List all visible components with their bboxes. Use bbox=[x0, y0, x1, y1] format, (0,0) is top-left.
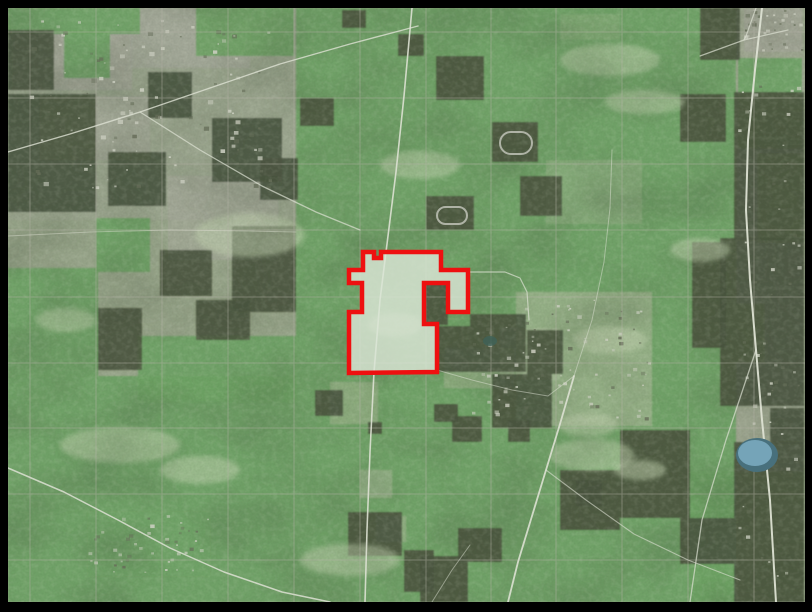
building-speck bbox=[122, 518, 126, 521]
building-speck bbox=[762, 112, 766, 115]
building-speck bbox=[772, 431, 776, 434]
building-speck bbox=[64, 72, 66, 73]
building-speck bbox=[616, 417, 618, 419]
building-speck bbox=[749, 206, 751, 208]
building-speck bbox=[526, 322, 530, 325]
building-speck bbox=[754, 281, 757, 283]
building-speck bbox=[768, 561, 770, 563]
building-speck bbox=[122, 566, 125, 569]
building-speck bbox=[746, 14, 750, 18]
building-speck bbox=[254, 149, 257, 151]
building-speck bbox=[789, 283, 792, 285]
building-speck bbox=[784, 407, 787, 409]
building-speck bbox=[60, 128, 62, 129]
building-speck bbox=[782, 19, 785, 22]
building-speck bbox=[110, 66, 115, 70]
building-speck bbox=[774, 22, 776, 24]
building-speck bbox=[114, 186, 116, 188]
building-speck bbox=[130, 102, 134, 105]
building-speck bbox=[793, 234, 797, 237]
building-speck bbox=[534, 329, 536, 331]
building-speck bbox=[59, 44, 62, 46]
building-speck bbox=[113, 149, 116, 151]
building-speck bbox=[269, 179, 272, 182]
building-speck bbox=[37, 172, 40, 175]
building-speck bbox=[258, 148, 262, 151]
building-speck bbox=[532, 336, 535, 338]
building-speck bbox=[119, 554, 123, 557]
building-speck bbox=[180, 36, 182, 37]
building-speck bbox=[498, 399, 500, 401]
building-speck bbox=[127, 555, 131, 559]
building-speck bbox=[765, 396, 767, 397]
building-speck bbox=[89, 552, 93, 555]
building-speck bbox=[132, 135, 137, 139]
building-speck bbox=[780, 23, 782, 25]
building-speck bbox=[472, 412, 475, 415]
building-speck bbox=[97, 59, 100, 62]
building-speck bbox=[640, 311, 642, 313]
building-speck bbox=[57, 25, 61, 28]
building-speck bbox=[611, 386, 614, 389]
building-speck bbox=[768, 147, 771, 149]
building-speck bbox=[742, 91, 744, 93]
building-speck bbox=[207, 519, 209, 521]
building-speck bbox=[101, 135, 106, 139]
building-speck bbox=[114, 564, 117, 566]
building-speck bbox=[176, 569, 178, 570]
building-speck bbox=[769, 43, 772, 46]
building-speck bbox=[120, 54, 125, 58]
building-speck bbox=[739, 359, 742, 362]
building-speck bbox=[760, 353, 762, 354]
building-speck bbox=[636, 311, 639, 314]
building-speck bbox=[619, 342, 623, 345]
building-speck bbox=[642, 385, 644, 386]
building-speck bbox=[738, 129, 741, 132]
building-speck bbox=[560, 375, 562, 377]
building-speck bbox=[113, 549, 117, 552]
building-speck bbox=[174, 164, 176, 166]
building-speck bbox=[609, 395, 611, 397]
building-speck bbox=[87, 93, 89, 94]
building-speck bbox=[797, 134, 799, 136]
building-speck bbox=[801, 49, 803, 51]
building-speck bbox=[84, 168, 88, 171]
building-speck bbox=[137, 184, 141, 187]
building-speck bbox=[618, 337, 621, 340]
building-speck bbox=[482, 373, 486, 376]
building-speck bbox=[129, 110, 131, 111]
building-speck bbox=[232, 113, 234, 115]
building-speck bbox=[222, 33, 225, 36]
building-speck bbox=[759, 86, 762, 88]
building-speck bbox=[768, 393, 772, 396]
building-speck bbox=[537, 344, 541, 347]
building-speck bbox=[165, 569, 168, 571]
building-speck bbox=[799, 24, 803, 27]
building-speck bbox=[235, 58, 238, 60]
building-speck bbox=[793, 371, 796, 373]
building-speck bbox=[633, 368, 637, 371]
building-speck bbox=[249, 134, 253, 138]
building-speck bbox=[123, 44, 125, 45]
building-speck bbox=[213, 50, 217, 53]
building-speck bbox=[773, 258, 776, 260]
building-speck bbox=[531, 350, 535, 354]
building-speck bbox=[221, 149, 226, 153]
building-speck bbox=[487, 375, 491, 378]
building-speck bbox=[781, 366, 784, 369]
building-speck bbox=[113, 81, 116, 83]
building-speck bbox=[121, 111, 126, 115]
building-speck bbox=[126, 538, 130, 541]
building-speck bbox=[128, 118, 131, 121]
building-speck bbox=[612, 349, 615, 351]
building-speck bbox=[200, 124, 202, 125]
building-speck bbox=[161, 47, 165, 50]
building-speck bbox=[155, 115, 160, 119]
building-speck bbox=[230, 137, 234, 140]
building-speck bbox=[260, 170, 263, 172]
building-speck bbox=[196, 531, 198, 533]
building-speck bbox=[258, 156, 263, 160]
building-speck bbox=[791, 21, 794, 23]
building-speck bbox=[167, 515, 170, 518]
building-speck bbox=[783, 145, 785, 146]
building-speck bbox=[44, 182, 49, 186]
building-speck bbox=[594, 300, 596, 301]
building-speck bbox=[148, 518, 151, 520]
building-speck bbox=[605, 339, 608, 341]
building-speck bbox=[771, 294, 773, 295]
building-speck bbox=[745, 394, 747, 396]
building-speck bbox=[195, 540, 197, 542]
building-speck bbox=[254, 184, 259, 188]
building-speck bbox=[508, 324, 511, 326]
building-speck bbox=[123, 97, 128, 101]
building-speck bbox=[222, 39, 226, 42]
building-speck bbox=[739, 527, 742, 529]
building-speck bbox=[523, 352, 525, 353]
building-speck bbox=[214, 83, 217, 85]
building-speck bbox=[783, 43, 786, 45]
building-speck bbox=[570, 369, 572, 370]
building-speck bbox=[534, 412, 536, 414]
building-speck bbox=[180, 522, 182, 524]
building-speck bbox=[113, 571, 115, 573]
building-speck bbox=[151, 552, 154, 554]
map-canvas[interactable] bbox=[0, 0, 812, 612]
building-speck bbox=[784, 14, 788, 18]
building-speck bbox=[559, 401, 563, 404]
building-speck bbox=[78, 117, 80, 118]
building-speck bbox=[176, 544, 178, 545]
building-speck bbox=[502, 377, 505, 379]
building-speck bbox=[96, 535, 100, 538]
building-speck bbox=[568, 309, 570, 311]
building-speck bbox=[234, 139, 239, 143]
building-speck bbox=[208, 100, 213, 104]
building-speck bbox=[743, 341, 746, 344]
building-speck bbox=[772, 183, 775, 186]
building-speck bbox=[477, 352, 480, 355]
building-speck bbox=[487, 401, 491, 404]
building-speck bbox=[797, 87, 801, 90]
building-speck bbox=[777, 575, 779, 577]
building-speck bbox=[121, 561, 123, 563]
building-speck bbox=[92, 187, 94, 189]
building-speck bbox=[114, 137, 117, 140]
building-speck bbox=[769, 422, 771, 424]
building-speck bbox=[784, 10, 786, 12]
building-speck bbox=[169, 156, 171, 158]
building-speck bbox=[136, 151, 138, 152]
building-speck bbox=[150, 525, 155, 529]
pond bbox=[483, 336, 497, 346]
building-speck bbox=[90, 53, 93, 55]
building-speck bbox=[165, 540, 170, 544]
building-speck bbox=[104, 62, 106, 63]
building-speck bbox=[135, 121, 139, 124]
building-speck bbox=[234, 131, 239, 135]
building-speck bbox=[473, 343, 476, 346]
building-speck bbox=[785, 572, 788, 575]
building-speck bbox=[588, 396, 591, 399]
building-speck bbox=[771, 48, 773, 49]
building-speck bbox=[147, 532, 151, 535]
building-speck bbox=[627, 374, 631, 377]
building-speck bbox=[507, 357, 511, 360]
building-speck bbox=[507, 377, 510, 380]
building-speck bbox=[168, 561, 170, 563]
building-speck bbox=[541, 375, 544, 377]
building-speck bbox=[774, 381, 778, 384]
building-speck bbox=[770, 382, 773, 384]
building-speck bbox=[545, 348, 547, 349]
building-speck bbox=[645, 374, 647, 376]
building-speck bbox=[139, 547, 143, 550]
building-speck bbox=[32, 47, 37, 51]
building-speck bbox=[524, 406, 528, 409]
building-speck bbox=[743, 506, 745, 507]
building-speck bbox=[486, 328, 490, 332]
building-speck bbox=[236, 120, 241, 124]
building-speck bbox=[218, 43, 220, 44]
building-speck bbox=[590, 405, 594, 409]
building-speck bbox=[118, 120, 123, 124]
building-speck bbox=[41, 20, 44, 22]
building-speck bbox=[538, 378, 540, 380]
building-speck bbox=[645, 417, 649, 420]
building-speck bbox=[477, 332, 480, 334]
building-speck bbox=[595, 374, 598, 376]
building-speck bbox=[112, 141, 114, 143]
building-speck bbox=[496, 413, 500, 416]
building-speck bbox=[798, 385, 800, 386]
building-speck bbox=[181, 527, 185, 530]
building-speck bbox=[783, 244, 785, 246]
building-speck bbox=[605, 312, 609, 315]
building-speck bbox=[190, 548, 194, 551]
building-speck bbox=[745, 242, 747, 244]
building-speck bbox=[774, 29, 776, 31]
building-speck bbox=[181, 180, 185, 183]
building-speck bbox=[785, 34, 787, 36]
building-speck bbox=[101, 531, 104, 534]
building-speck bbox=[71, 130, 73, 132]
building-speck bbox=[787, 113, 791, 116]
building-speck bbox=[204, 55, 207, 58]
building-speck bbox=[233, 35, 235, 37]
building-speck bbox=[798, 245, 801, 247]
building-speck bbox=[189, 116, 193, 119]
building-speck bbox=[107, 179, 109, 180]
building-speck bbox=[179, 532, 182, 534]
building-speck bbox=[78, 21, 81, 24]
building-speck bbox=[90, 165, 92, 167]
building-speck bbox=[134, 543, 137, 545]
building-speck bbox=[567, 305, 570, 308]
building-speck bbox=[797, 266, 801, 269]
building-speck bbox=[744, 354, 746, 356]
building-speck bbox=[760, 130, 762, 132]
building-speck bbox=[777, 588, 781, 591]
building-speck bbox=[552, 314, 554, 316]
building-speck bbox=[754, 93, 758, 96]
building-speck bbox=[140, 89, 144, 92]
building-speck bbox=[762, 49, 765, 51]
building-speck bbox=[786, 468, 790, 471]
building-speck bbox=[50, 95, 52, 96]
building-speck bbox=[791, 90, 794, 92]
building-speck bbox=[752, 23, 756, 26]
building-speck bbox=[204, 127, 209, 131]
building-speck bbox=[504, 390, 508, 393]
building-speck bbox=[191, 26, 194, 29]
building-speck bbox=[557, 305, 560, 307]
building-speck bbox=[41, 139, 43, 141]
building-speck bbox=[258, 127, 260, 129]
building-speck bbox=[505, 404, 509, 407]
building-speck bbox=[774, 364, 777, 367]
building-speck bbox=[237, 149, 239, 151]
building-speck bbox=[99, 77, 103, 81]
building-speck bbox=[149, 52, 154, 56]
building-speck bbox=[784, 180, 787, 182]
building-speck bbox=[230, 74, 232, 76]
building-speck bbox=[129, 534, 133, 537]
building-speck bbox=[516, 386, 519, 388]
building-speck bbox=[794, 24, 796, 26]
building-speck bbox=[794, 458, 798, 461]
building-speck bbox=[766, 15, 768, 17]
building-speck bbox=[495, 374, 498, 377]
building-speck bbox=[188, 530, 190, 532]
building-speck bbox=[595, 405, 599, 408]
building-speck bbox=[525, 356, 529, 359]
building-speck bbox=[763, 343, 766, 345]
building-speck bbox=[48, 111, 51, 113]
building-speck bbox=[772, 390, 774, 391]
building-speck bbox=[192, 570, 194, 572]
building-speck bbox=[185, 552, 188, 554]
building-speck bbox=[746, 535, 750, 538]
building-speck bbox=[524, 398, 526, 400]
building-speck bbox=[174, 541, 177, 544]
building-speck bbox=[232, 145, 236, 148]
building-speck bbox=[641, 372, 645, 376]
building-speck bbox=[747, 510, 751, 513]
building-speck bbox=[773, 14, 775, 16]
building-speck bbox=[126, 50, 128, 52]
building-speck bbox=[242, 90, 245, 93]
building-speck bbox=[745, 111, 749, 114]
building-speck bbox=[506, 327, 508, 328]
building-speck bbox=[126, 169, 128, 171]
building-speck bbox=[794, 13, 796, 15]
building-speck bbox=[792, 242, 795, 244]
building-speck bbox=[639, 342, 641, 344]
building-speck bbox=[785, 46, 788, 48]
building-speck bbox=[514, 329, 517, 331]
building-speck bbox=[117, 24, 119, 25]
building-speck bbox=[532, 341, 534, 342]
building-speck bbox=[778, 208, 780, 210]
building-speck bbox=[566, 321, 569, 324]
building-speck bbox=[57, 112, 60, 115]
building-speck bbox=[568, 347, 572, 351]
building-speck bbox=[638, 410, 641, 412]
building-speck bbox=[771, 268, 775, 271]
building-speck bbox=[200, 549, 204, 552]
building-speck bbox=[761, 557, 764, 559]
map-viewport bbox=[0, 0, 812, 612]
building-speck bbox=[637, 415, 641, 418]
building-speck bbox=[144, 572, 146, 574]
building-speck bbox=[783, 383, 787, 386]
building-speck bbox=[573, 389, 575, 390]
building-speck bbox=[633, 329, 635, 331]
lake-water bbox=[738, 440, 772, 466]
building-speck bbox=[142, 46, 145, 49]
building-speck bbox=[567, 329, 569, 331]
building-speck bbox=[781, 433, 784, 435]
building-speck bbox=[515, 364, 519, 367]
building-speck bbox=[577, 315, 582, 319]
